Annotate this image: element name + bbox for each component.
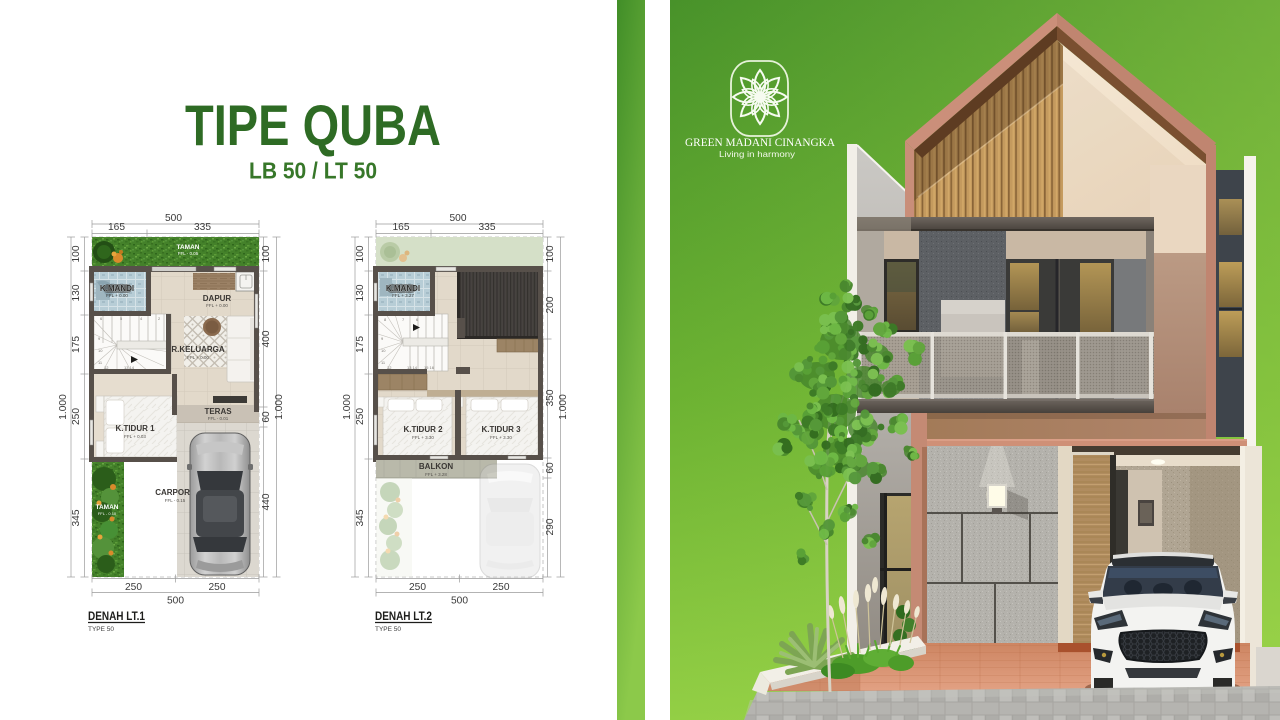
svg-text:250: 250 xyxy=(209,582,226,593)
svg-text:K.TIDUR 2: K.TIDUR 2 xyxy=(403,425,443,434)
svg-text:290: 290 xyxy=(545,518,556,535)
svg-text:K.TIDUR 3: K.TIDUR 3 xyxy=(481,425,521,434)
svg-text:175: 175 xyxy=(355,336,366,353)
svg-text:DENAH LT.1: DENAH LT.1 xyxy=(88,611,146,623)
svg-text:FFL + 3.30: FFL + 3.30 xyxy=(490,435,512,440)
svg-text:DAPUR: DAPUR xyxy=(203,294,232,303)
svg-text:TYPE 50: TYPE 50 xyxy=(375,626,401,633)
svg-text:200: 200 xyxy=(545,296,556,313)
svg-text:10: 10 xyxy=(381,348,386,353)
svg-text:175: 175 xyxy=(71,336,82,353)
svg-text:100: 100 xyxy=(71,245,82,262)
svg-text:FFL - 0.05: FFL - 0.05 xyxy=(178,251,199,256)
svg-text:R.KELUARGA: R.KELUARGA xyxy=(171,345,225,354)
svg-text:FFL - 0.15: FFL - 0.15 xyxy=(165,498,186,503)
svg-text:K.TIDUR 1: K.TIDUR 1 xyxy=(115,424,155,433)
svg-text:100: 100 xyxy=(355,245,366,262)
svg-text:345: 345 xyxy=(71,509,82,526)
svg-text:250: 250 xyxy=(355,408,366,425)
svg-text:500: 500 xyxy=(450,213,467,224)
svg-text:DENAH LT.2: DENAH LT.2 xyxy=(375,611,432,623)
svg-text:440: 440 xyxy=(261,493,272,510)
svg-text:250: 250 xyxy=(125,582,142,593)
svg-text:FFL - 0.10: FFL - 0.10 xyxy=(98,511,117,516)
svg-text:K.MANDI: K.MANDI xyxy=(100,284,134,293)
svg-text:165: 165 xyxy=(393,222,410,233)
svg-text:TAMAN: TAMAN xyxy=(96,504,119,511)
svg-text:1.000: 1.000 xyxy=(558,394,569,420)
svg-text:GREEN MADANI CINANGKA: GREEN MADANI CINANGKA xyxy=(685,137,836,149)
svg-text:500: 500 xyxy=(167,596,184,607)
svg-text:250: 250 xyxy=(409,582,426,593)
svg-text:CARPORT: CARPORT xyxy=(155,488,195,497)
svg-text:250: 250 xyxy=(71,408,82,425)
svg-text:500: 500 xyxy=(451,596,468,607)
svg-text:335: 335 xyxy=(479,222,496,233)
svg-text:350: 350 xyxy=(545,389,556,406)
svg-text:165: 165 xyxy=(108,222,125,233)
svg-text:1.000: 1.000 xyxy=(342,394,353,420)
svg-text:TERAS: TERAS xyxy=(204,407,232,416)
svg-text:BALKON: BALKON xyxy=(419,462,453,471)
svg-text:10: 10 xyxy=(98,348,103,353)
svg-text:130: 130 xyxy=(355,284,366,301)
svg-text:250: 250 xyxy=(493,582,510,593)
svg-text:FFL + 0.00: FFL + 0.00 xyxy=(206,303,228,308)
svg-text:400: 400 xyxy=(261,330,272,347)
svg-text:FFL + 0.03: FFL + 0.03 xyxy=(124,434,146,439)
svg-text:500: 500 xyxy=(165,213,182,224)
svg-text:TAMAN: TAMAN xyxy=(177,244,200,251)
svg-text:LB 50 / LT 50: LB 50 / LT 50 xyxy=(249,158,377,184)
svg-text:TYPE 50: TYPE 50 xyxy=(88,626,114,633)
svg-text:TIPE QUBA: TIPE QUBA xyxy=(185,94,441,158)
svg-text:Living in harmony: Living in harmony xyxy=(719,149,796,159)
svg-text:60: 60 xyxy=(545,462,556,474)
svg-text:335: 335 xyxy=(194,222,211,233)
svg-text:FFL + 3.27: FFL + 3.27 xyxy=(392,293,414,298)
svg-text:FFL + 3.28: FFL + 3.28 xyxy=(425,472,447,477)
svg-text:100: 100 xyxy=(261,245,272,262)
svg-text:FFL - 0.01: FFL - 0.01 xyxy=(208,416,229,421)
svg-text:60: 60 xyxy=(261,411,272,423)
svg-text:130: 130 xyxy=(71,284,82,301)
svg-text:1.000: 1.000 xyxy=(274,394,285,420)
svg-text:100: 100 xyxy=(545,245,556,262)
svg-text:FFL + 3.30: FFL + 3.30 xyxy=(412,435,434,440)
svg-text:FFL + 0.00: FFL + 0.00 xyxy=(187,355,209,360)
svg-text:1.000: 1.000 xyxy=(58,394,69,420)
svg-text:345: 345 xyxy=(355,509,366,526)
svg-text:K.MANDI: K.MANDI xyxy=(386,284,420,293)
svg-text:FFL + 0.00: FFL + 0.00 xyxy=(106,293,128,298)
